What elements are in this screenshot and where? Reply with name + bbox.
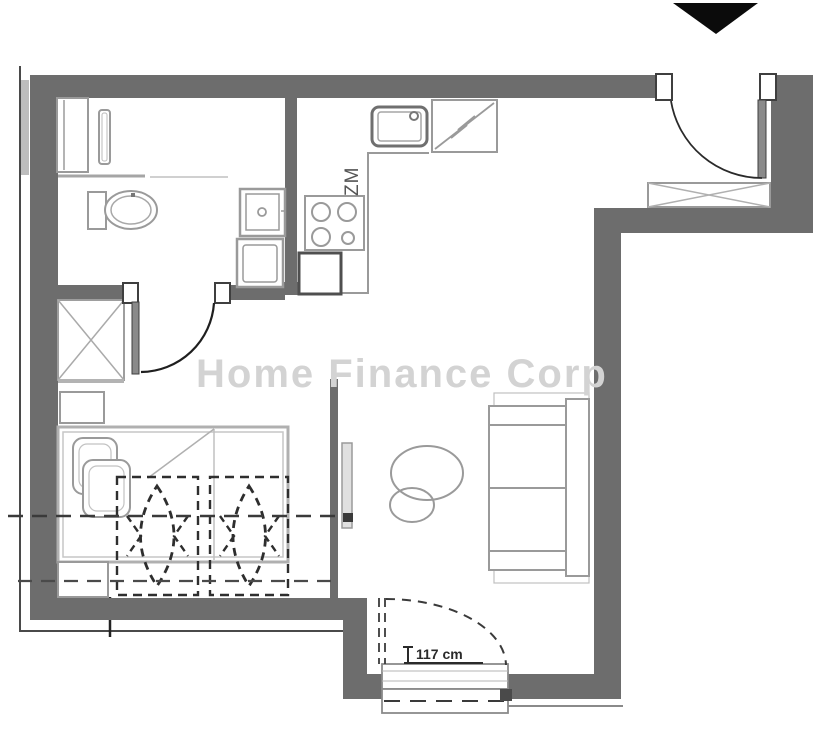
floor-plan: 117 cm ZM Home Finance Corp xyxy=(0,0,822,732)
round-table-small xyxy=(390,488,434,522)
sofa-armrest xyxy=(489,551,566,570)
kitchen-sink xyxy=(372,107,427,146)
door-leaf xyxy=(758,100,766,178)
wall-bottom-bedroom xyxy=(30,598,343,620)
door-jamb xyxy=(656,74,672,100)
sofa-armrest xyxy=(489,406,566,425)
nightstand xyxy=(60,392,104,423)
hall-wardrobe-xbox xyxy=(58,300,124,381)
wall-bathroom-bottom-left xyxy=(58,285,124,300)
watermark: Home Finance Corp xyxy=(196,352,608,396)
wall-left xyxy=(30,75,58,620)
pillow xyxy=(83,460,130,517)
door-leaf xyxy=(132,302,139,374)
sofa-backrest xyxy=(566,399,589,576)
door-handle-post xyxy=(500,689,512,701)
sofa xyxy=(489,393,589,583)
door-jamb xyxy=(123,283,138,303)
kitchen-appliance-label: ZM xyxy=(342,167,363,196)
oven xyxy=(299,253,341,294)
wall-bathroom-kitchen-divider xyxy=(285,98,297,293)
wall-right xyxy=(594,208,621,699)
door-jamb xyxy=(760,74,776,100)
balcony-door-sill xyxy=(382,664,508,689)
wall-bottom-right xyxy=(508,674,621,699)
wall-step-horizontal xyxy=(618,208,813,233)
door-jamb xyxy=(215,283,230,303)
door-swing-arc xyxy=(671,101,762,178)
wall-divider-cap xyxy=(283,282,299,295)
entrance-wardrobe xyxy=(648,183,770,207)
toilet-tank xyxy=(88,192,106,229)
entrance-door xyxy=(656,74,776,178)
bedroom-furniture xyxy=(58,392,288,597)
floor-plan-drawing: 117 cm ZM Home Finance Corp xyxy=(0,0,822,732)
exterior-wall-lining xyxy=(21,80,29,175)
balcony-door-width-label: 117 cm xyxy=(416,646,463,662)
bathroom-fixtures xyxy=(57,98,286,287)
towel-radiator xyxy=(99,110,110,164)
living-furniture xyxy=(342,393,589,583)
wall-tv-partition xyxy=(330,379,338,598)
tv-mount xyxy=(343,513,353,522)
wall-top xyxy=(30,75,659,98)
north-marker-icon xyxy=(673,3,758,34)
bed-bench xyxy=(58,562,108,597)
wall-step-vertical xyxy=(343,598,367,699)
duct-shaft xyxy=(57,98,88,172)
kitchen-fixtures xyxy=(298,100,497,294)
